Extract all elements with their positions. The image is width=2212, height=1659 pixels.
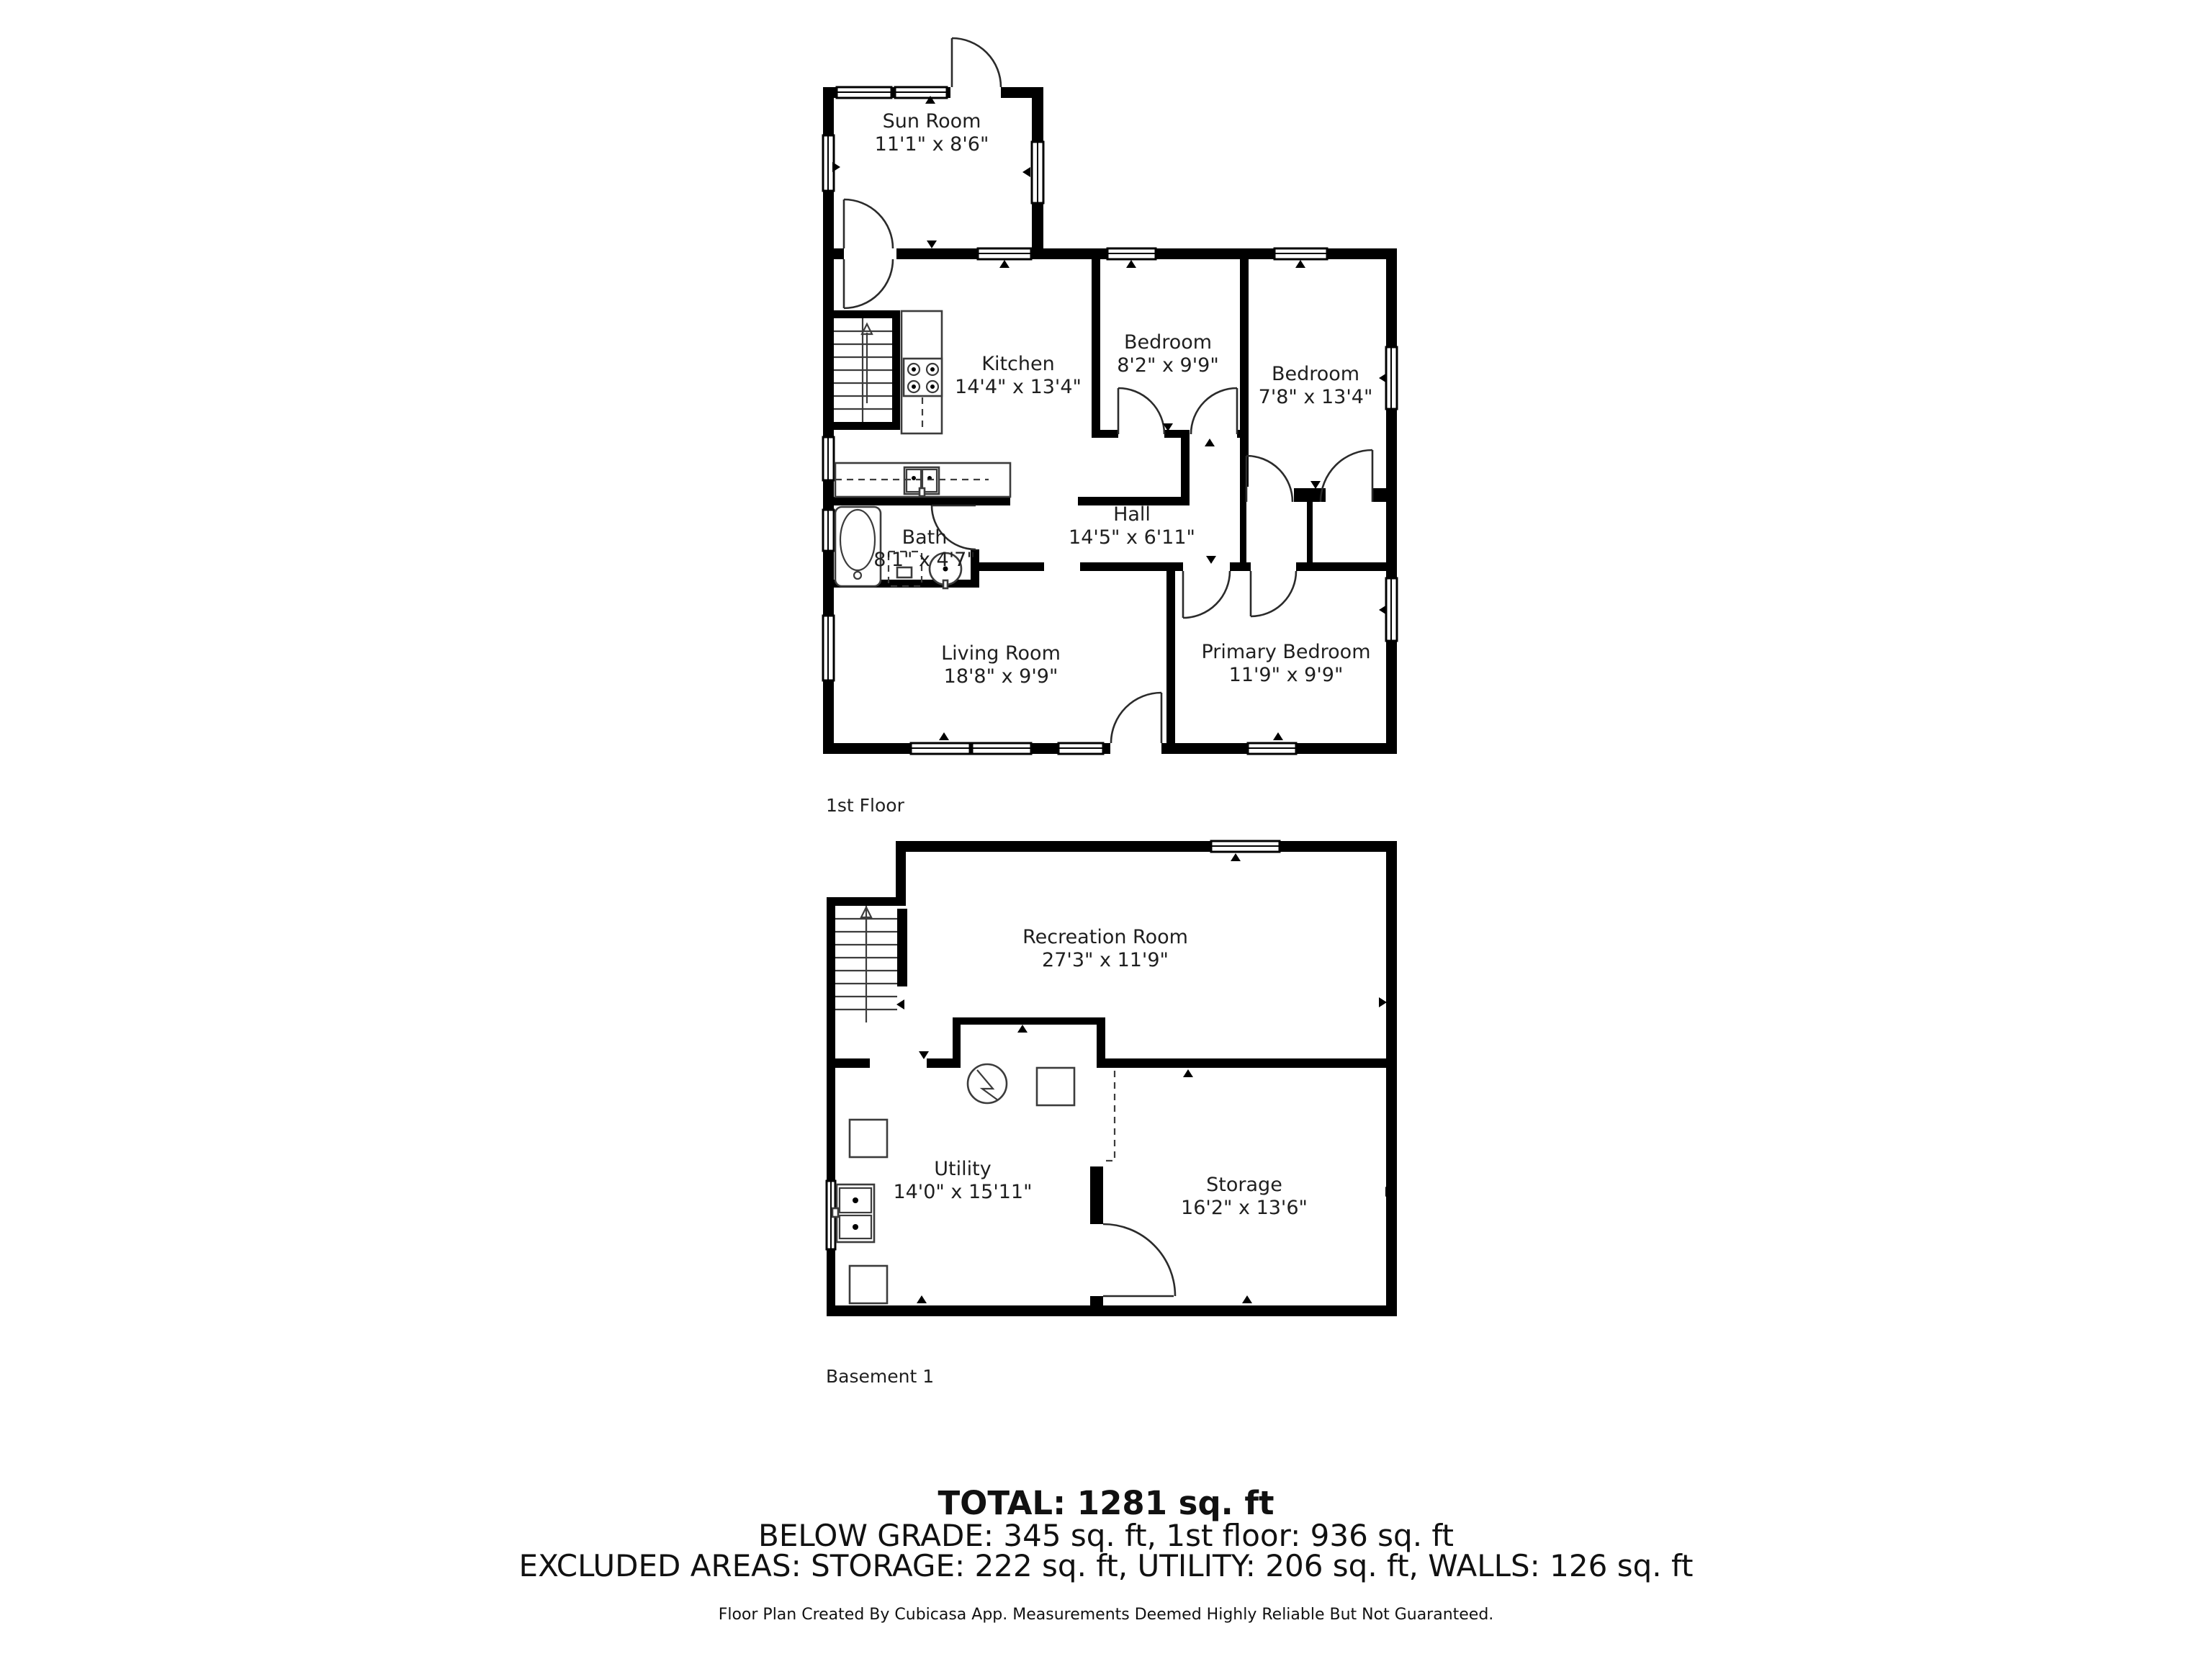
room-label-storage: Storage 16'2" x 13'6" xyxy=(1181,1174,1308,1219)
first-floor-stairs-icon xyxy=(834,318,892,422)
room-name: Kitchen xyxy=(981,353,1054,375)
room-label-bedroom-2: Bedroom 7'8" x 13'4" xyxy=(1259,363,1373,408)
electrical-equipment-icon xyxy=(968,1064,1007,1103)
room-label-utility: Utility 14'0" x 15'11" xyxy=(893,1158,1032,1203)
room-dims: 7'8" x 13'4" xyxy=(1259,386,1373,408)
first-floor-plan: Sun Room 11'1" x 8'6" Kitchen 14'4" x 13… xyxy=(823,38,1397,816)
room-name: Storage xyxy=(1206,1174,1282,1196)
summary-block: TOTAL: 1281 sq. ft BELOW GRADE: 345 sq. … xyxy=(519,1484,1694,1624)
floor-plan-canvas: Sun Room 11'1" x 8'6" Kitchen 14'4" x 13… xyxy=(0,0,2212,1659)
summary-excluded-areas: EXCLUDED AREAS: STORAGE: 222 sq. ft, UTI… xyxy=(519,1548,1694,1583)
basement-doors xyxy=(897,986,1175,1296)
room-dims: 14'4" x 13'4" xyxy=(955,376,1082,398)
room-name: Bath xyxy=(902,526,948,549)
first-floor-label: 1st Floor xyxy=(826,795,905,816)
room-label-recreation-room: Recreation Room 27'3" x 11'9" xyxy=(1022,926,1188,971)
appliance-box-bottom-icon xyxy=(850,1266,887,1303)
room-label-living-room: Living Room 18'8" x 9'9" xyxy=(941,642,1061,688)
kitchen-sink-icon xyxy=(904,467,939,496)
equipment-box-icon xyxy=(1037,1068,1074,1105)
room-name: Hall xyxy=(1113,503,1151,526)
room-label-bath: Bath 8'1" x 4'7" xyxy=(873,526,976,571)
basement-stairs-icon xyxy=(835,906,897,1022)
bathtub-icon xyxy=(835,507,881,586)
summary-total: TOTAL: 1281 sq. ft xyxy=(938,1484,1274,1522)
room-name: Living Room xyxy=(941,642,1061,665)
room-label-primary-bedroom: Primary Bedroom 11'9" x 9'9" xyxy=(1201,641,1370,686)
appliance-box-top-icon xyxy=(850,1120,887,1157)
room-dims: 14'0" x 15'11" xyxy=(893,1181,1032,1203)
room-dims: 11'9" x 9'9" xyxy=(1229,664,1344,686)
room-name: Bedroom xyxy=(1272,363,1359,385)
room-name: Bedroom xyxy=(1124,331,1212,354)
room-label-kitchen: Kitchen 14'4" x 13'4" xyxy=(955,353,1082,398)
basement-plan: Recreation Room 27'3" x 11'9" Utility 14… xyxy=(826,841,1397,1387)
utility-sink-icon xyxy=(832,1184,874,1242)
room-dims: 14'5" x 6'11" xyxy=(1069,526,1195,549)
room-dims: 11'1" x 8'6" xyxy=(875,133,989,156)
summary-disclaimer: Floor Plan Created By Cubicasa App. Meas… xyxy=(719,1606,1494,1624)
room-dims: 27'3" x 11'9" xyxy=(1042,949,1169,971)
room-name: Utility xyxy=(934,1158,991,1180)
basement-floor-label: Basement 1 xyxy=(826,1366,934,1387)
room-name: Sun Room xyxy=(883,110,981,132)
room-label-hall: Hall 14'5" x 6'11" xyxy=(1069,503,1195,549)
room-dims: 8'2" x 9'9" xyxy=(1117,354,1219,377)
room-name: Recreation Room xyxy=(1022,926,1188,948)
basement-walls xyxy=(827,841,1397,1316)
room-label-sun-room: Sun Room 11'1" x 8'6" xyxy=(875,110,989,156)
room-dims: 18'8" x 9'9" xyxy=(944,665,1058,688)
stove-icon xyxy=(904,359,942,396)
room-dims: 8'1" x 4'7" xyxy=(873,549,976,571)
room-dims: 16'2" x 13'6" xyxy=(1181,1197,1308,1219)
kitchen-fixtures xyxy=(835,311,1010,497)
room-name: Primary Bedroom xyxy=(1201,641,1370,663)
room-label-bedroom-1: Bedroom 8'2" x 9'9" xyxy=(1117,331,1219,377)
